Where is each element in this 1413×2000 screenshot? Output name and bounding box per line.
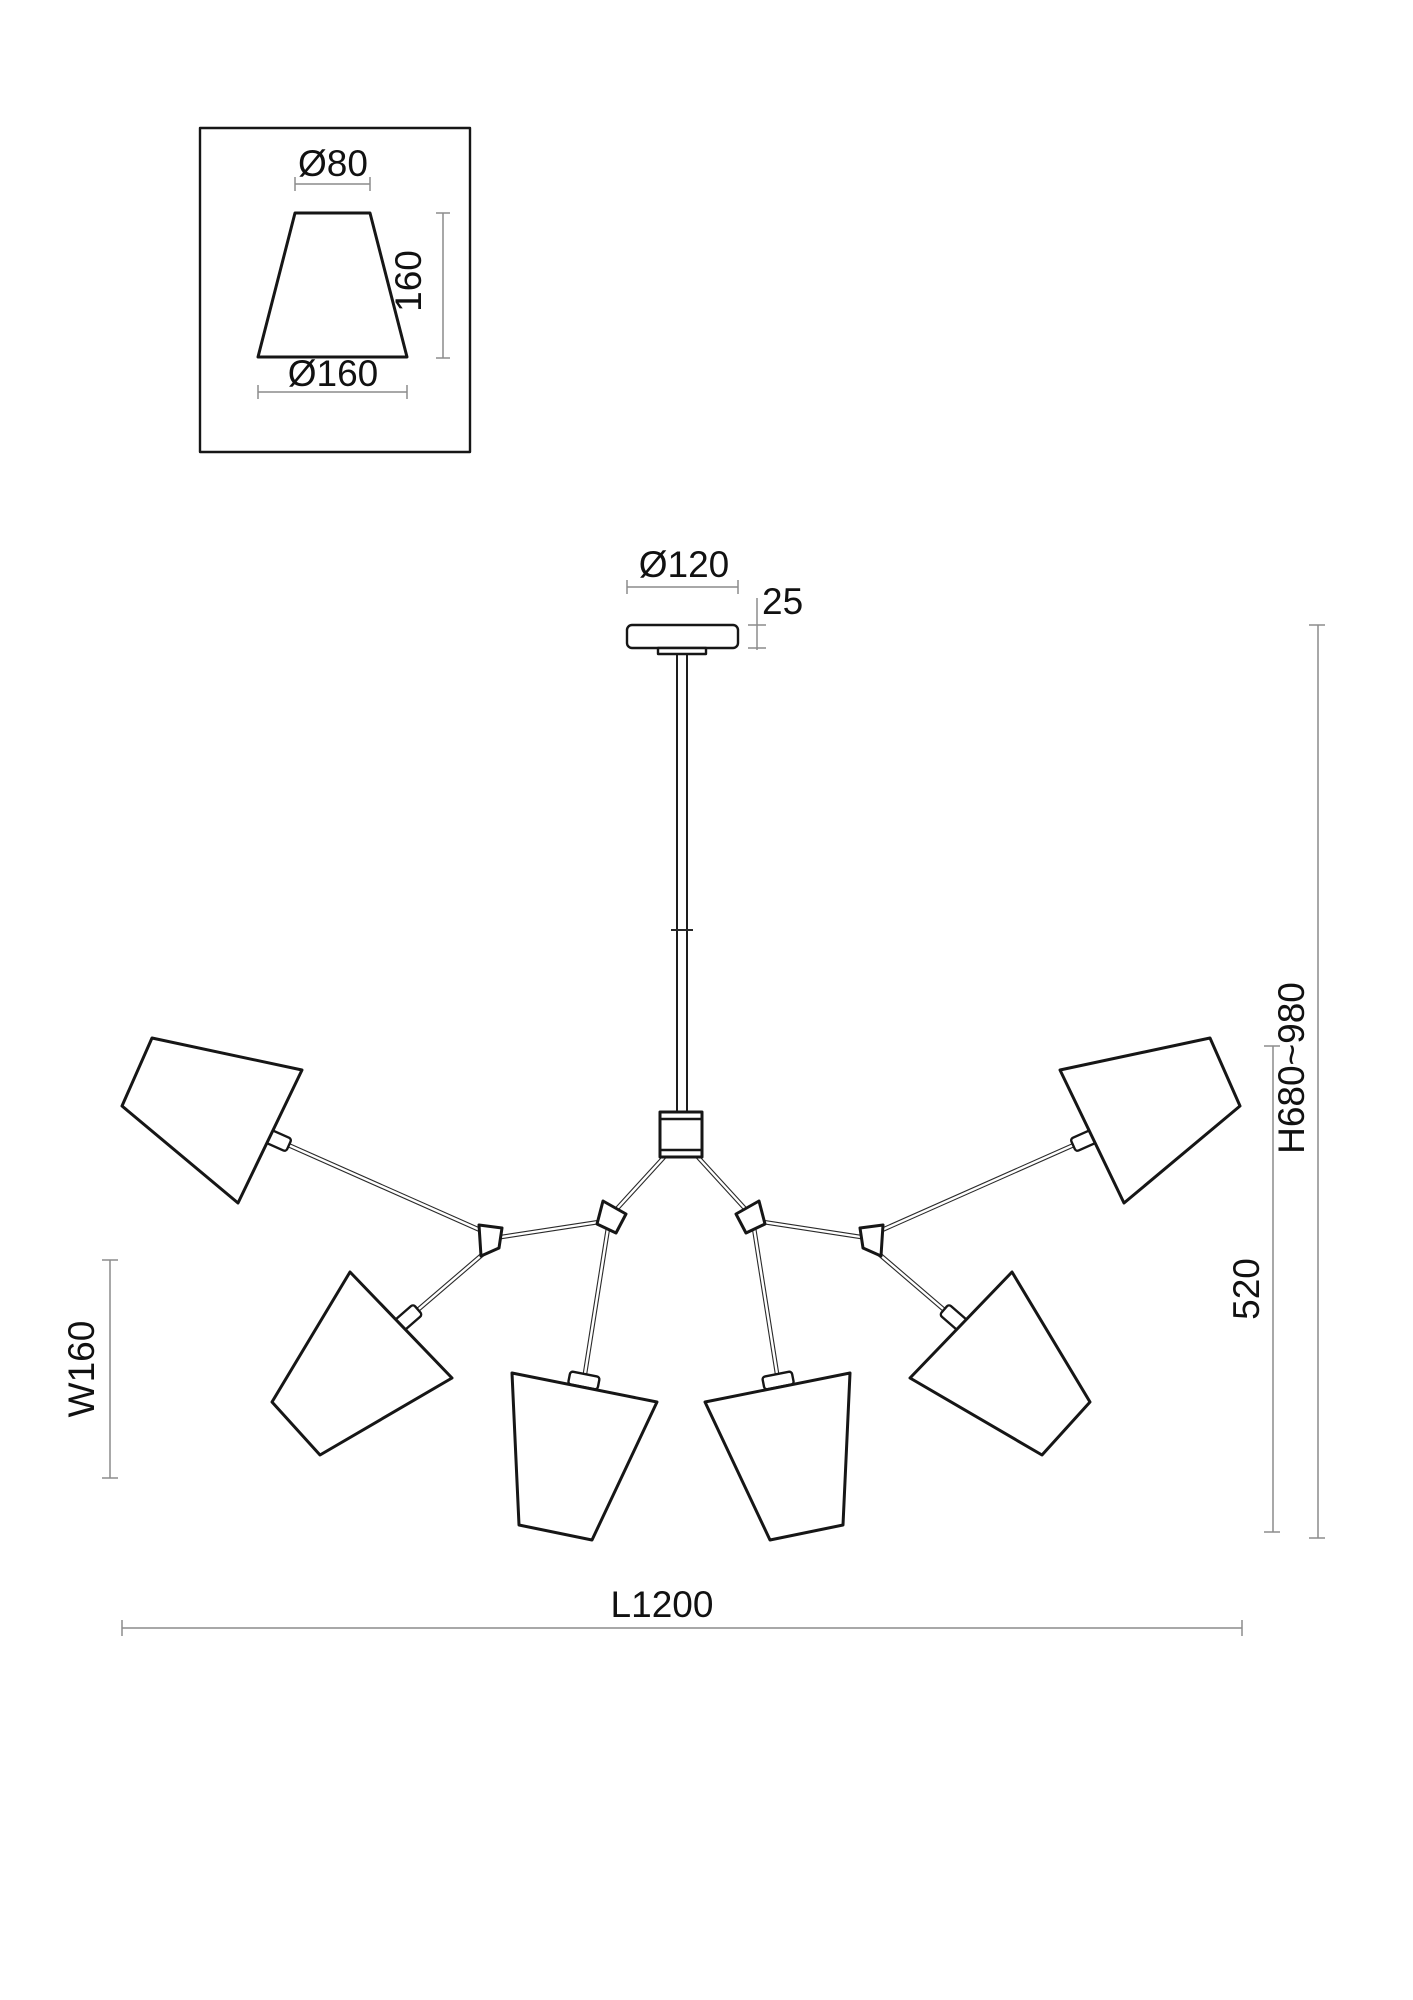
body-height-label: 520 [1226,1258,1267,1320]
shade-width-dimline [102,1260,118,1478]
technical-drawing-page: Ø80 160 Ø160 Ø120 25 [0,0,1413,2000]
shade-bottom-right [705,1373,850,1540]
shade-profile-trapezoid [258,213,407,357]
shade-bottom-left [512,1373,657,1540]
overall-height-label: H680~980 [1271,982,1312,1154]
outer-right-joint [860,1225,883,1256]
suspension-rod [671,652,693,1114]
canopy-diameter-label: Ø120 [639,544,730,585]
inset-top-diameter-label: Ø80 [298,143,368,184]
shade-mid-right [910,1272,1090,1455]
central-hub [660,1112,702,1157]
chandelier-dimension-drawing: Ø80 160 Ø160 Ø120 25 [0,0,1413,2000]
inset-shade-height-label: 160 [388,250,429,312]
canopy-height-label: 25 [762,581,803,622]
ceiling-canopy [627,625,738,654]
canopy-collar [658,648,706,654]
shade-width-label: W160 [61,1321,102,1418]
outer-left-joint [479,1225,502,1256]
shade-mid-left [272,1272,452,1455]
inset-shade-height-dimline [436,213,450,358]
inset-bottom-diameter-label: Ø160 [288,353,379,394]
shade-upper-left [122,1038,302,1203]
overall-length-label: L1200 [611,1584,714,1625]
joint-knuckles [479,1201,883,1256]
shade-detail-inset: Ø80 160 Ø160 [200,128,470,452]
shade-upper-right [1060,1038,1240,1203]
